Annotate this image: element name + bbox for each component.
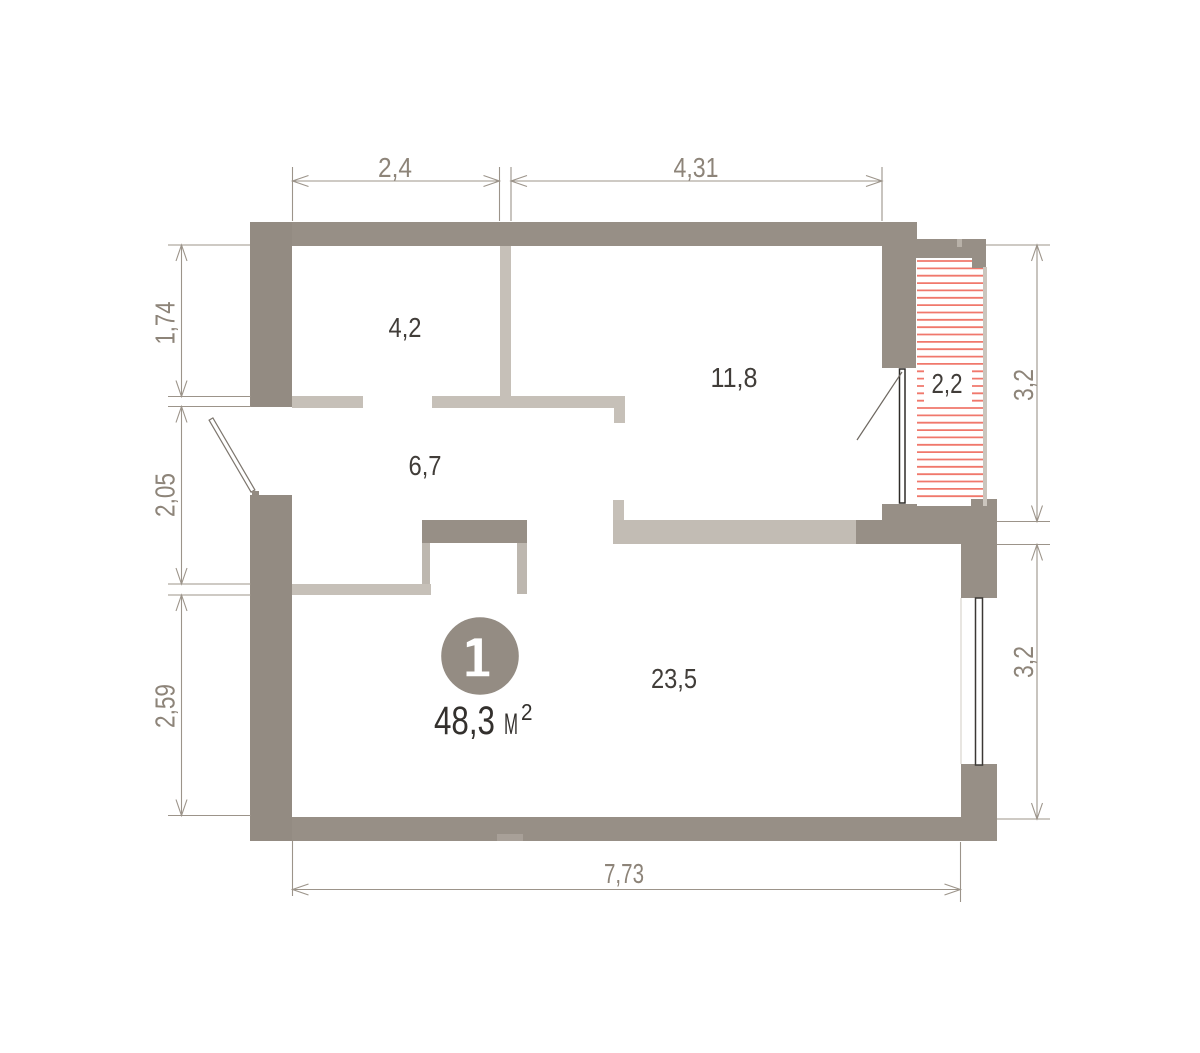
svg-text:2,05: 2,05 <box>150 473 181 517</box>
svg-text:2,4: 2,4 <box>378 152 412 183</box>
svg-text:7,73: 7,73 <box>604 858 644 889</box>
svg-text:3,2: 3,2 <box>1008 369 1039 401</box>
svg-text:23,5: 23,5 <box>651 663 697 694</box>
svg-text:М: М <box>504 708 518 741</box>
svg-text:4,2: 4,2 <box>389 312 422 343</box>
svg-text:6,7: 6,7 <box>409 450 442 481</box>
svg-text:11,8: 11,8 <box>711 362 758 393</box>
svg-text:3,2: 3,2 <box>1008 646 1039 678</box>
svg-text:4,31: 4,31 <box>674 152 719 183</box>
svg-text:48,3: 48,3 <box>434 699 495 743</box>
svg-text:2: 2 <box>521 699 533 725</box>
svg-text:2,59: 2,59 <box>150 684 181 728</box>
svg-text:1,74: 1,74 <box>150 302 181 345</box>
svg-text:2,2: 2,2 <box>932 368 963 399</box>
